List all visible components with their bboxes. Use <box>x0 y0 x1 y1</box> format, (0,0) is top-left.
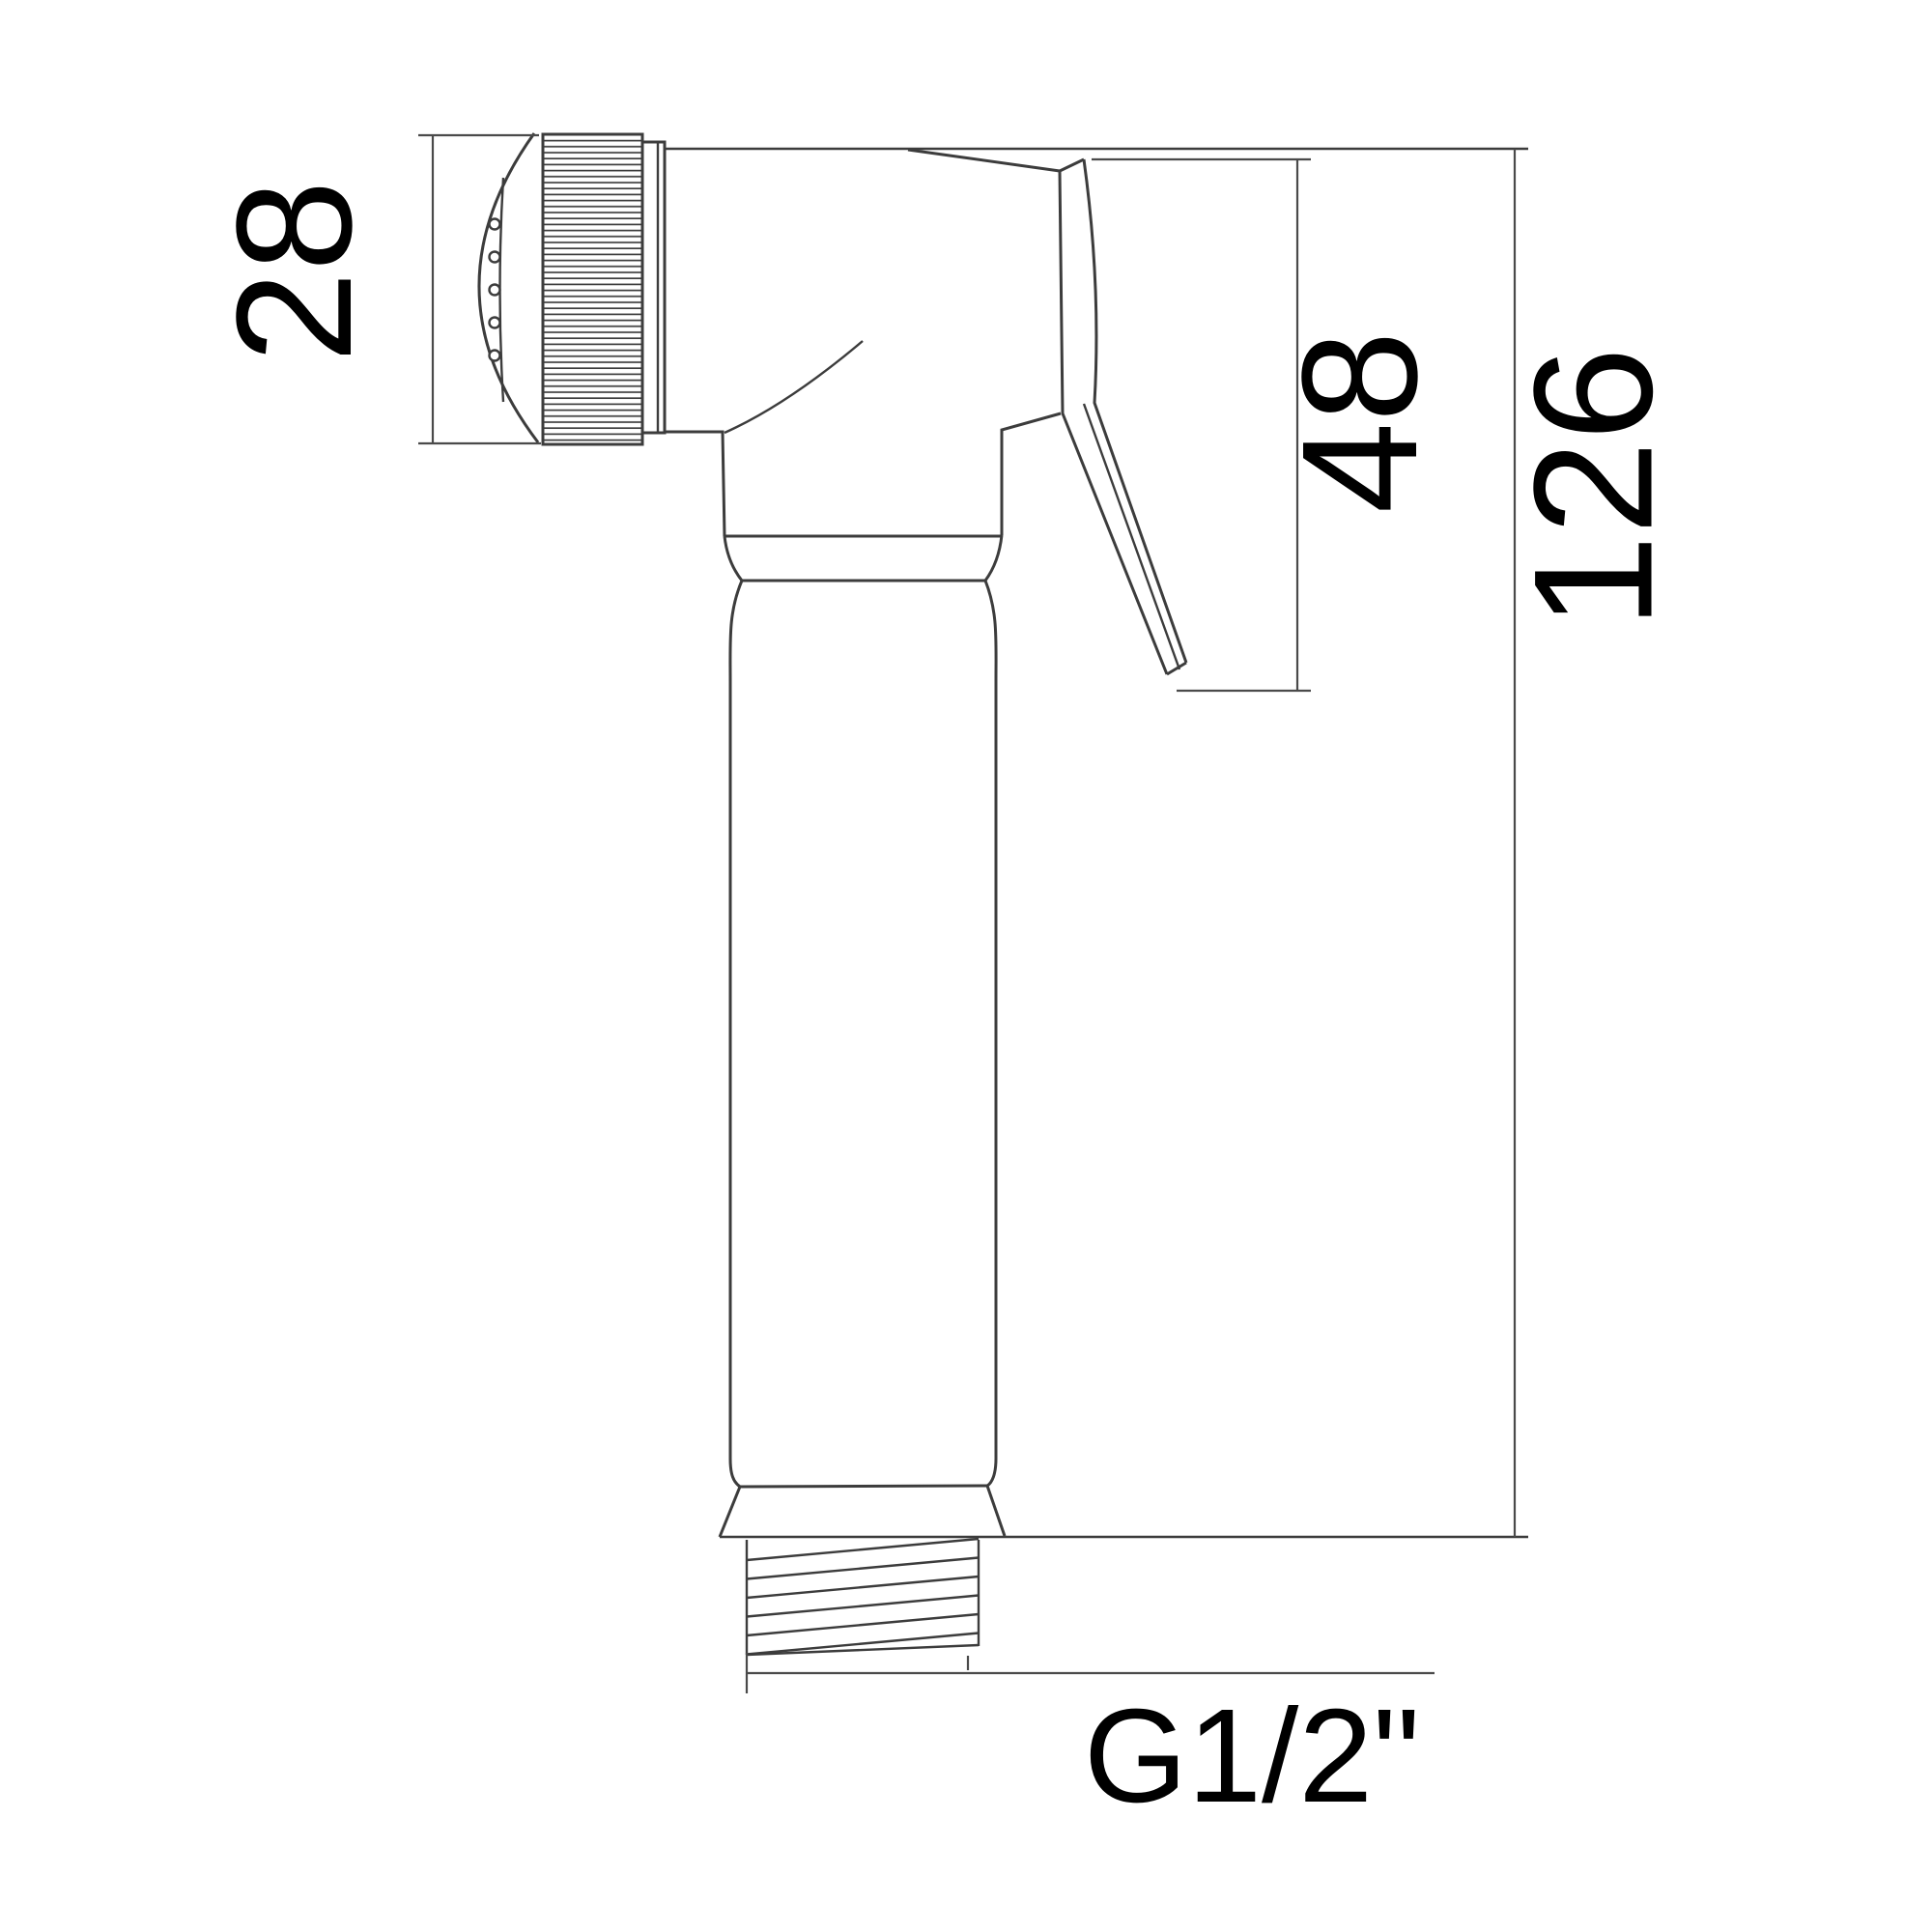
thread-crest <box>747 1539 979 1560</box>
spray-face <box>479 133 538 442</box>
dim48-label: 48 <box>1268 330 1452 513</box>
flare-left-edge <box>720 1487 740 1537</box>
dim28-label: 28 <box>203 180 386 362</box>
sprayer-technical-drawing: 28 48 126 G1/2" <box>0 0 1932 1932</box>
head-shoulder <box>1002 413 1061 535</box>
dimension-126: 126 <box>1500 149 1689 1537</box>
flare-cone <box>720 1486 1528 1537</box>
knurl-hatch <box>543 134 642 444</box>
nozzle-hole <box>490 351 500 361</box>
spray-face-arc <box>479 133 538 442</box>
collar-outline <box>642 142 665 433</box>
trigger-rear-inner-edge <box>1084 404 1179 669</box>
thread-connector <box>747 1539 979 1655</box>
thread-crest <box>747 1614 979 1635</box>
dimension-thread: G1/2" <box>747 1653 1435 1831</box>
knurled-ring <box>543 134 642 444</box>
thread-spec-label: G1/2" <box>1084 1682 1420 1831</box>
thread-crest <box>747 1596 979 1617</box>
head-bottom-edge <box>665 432 724 536</box>
nozzle-hole <box>490 318 500 328</box>
nozzle-hole <box>490 252 500 263</box>
neck-waist-right <box>985 535 1002 581</box>
collar <box>642 142 665 433</box>
flare-waist-line <box>740 1486 987 1487</box>
nozzle-hole <box>490 219 500 230</box>
handle <box>730 581 996 1487</box>
flare-right-edge <box>987 1486 1005 1536</box>
thread-crest <box>747 1558 979 1579</box>
head-fillet-curve <box>724 341 863 433</box>
trigger-top-cap <box>1060 159 1084 171</box>
dimension-48: 48 <box>1092 159 1452 691</box>
thread-crest <box>747 1577 979 1598</box>
nozzle-hole <box>490 285 500 296</box>
dim126-label: 126 <box>1500 347 1689 629</box>
drawing-canvas: 28 48 126 G1/2" <box>0 0 1932 1932</box>
neck-waist-left <box>724 536 742 581</box>
trigger-lever <box>1060 159 1186 674</box>
handle-left-edge <box>730 581 742 1487</box>
trigger-front-edge <box>1060 171 1167 674</box>
neck <box>724 535 1002 581</box>
handle-right-edge <box>985 581 996 1486</box>
trigger-rear-outer-edge <box>1084 159 1186 663</box>
head-top-slope <box>908 150 1060 171</box>
